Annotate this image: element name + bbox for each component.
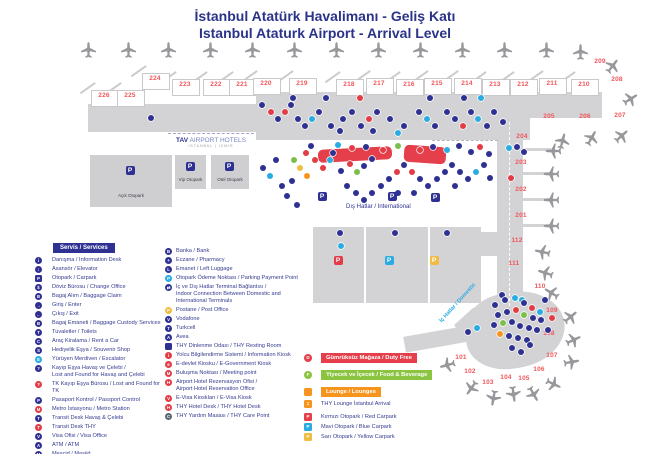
legend-item-label: Döviz Bürosu / Change Office [52,284,126,291]
bank-icon: B [165,248,172,255]
gate-label: 223 [173,81,197,88]
legend-item: HAirport Hotel Rezervasyon Ofisi / Airpo… [165,379,310,393]
airplane-icon [161,42,176,58]
tav-airport-hotels-logo: TAV AIRPORT HOTELS ISTANBUL | IZMIR [168,133,254,148]
airplane-icon [543,167,559,182]
legend-item-label: E-Visa Kioskları / E-Visa Kiosk [176,395,252,402]
gate-label: 203 [509,159,533,166]
gate-label: 213 [483,81,507,88]
airplane-icon [543,374,564,394]
gate-label: 110 [528,283,552,290]
map-poi-icon [409,169,416,176]
map-poi-icon [354,169,361,176]
international-terminal-building [313,227,481,303]
yellow-carpark-icon: P [304,433,312,441]
thy-resting-room-icon [165,343,172,350]
carpark-p-icon: P [388,192,397,201]
carpark-icon: P [35,275,42,282]
map-poi-icon [457,169,464,176]
map-poi-icon [521,149,528,156]
open-carpark-area [90,155,172,207]
legend-item: →Giriş / Enter [35,302,165,309]
legend-item-label: Otopark / Carpark [52,275,96,282]
legend-item: HTHY Hotel Desk / THY Hotel Desk [165,404,310,411]
legend-item-label: Emanet / Left Luggage [176,266,233,273]
legend-item: VVisa Ofisi / Visa Office [35,433,165,440]
legend-item: AATM / ATM [35,442,165,449]
carpark-p-icon: P [430,256,439,265]
map-poi-icon [442,169,449,176]
airplane-icon [504,385,521,403]
vip-carpark-label: Vip Otopark [172,177,209,182]
map-poi-icon [486,151,493,158]
map-poi-icon [304,173,311,180]
legend-item: PPasaport Kontrol / Passport Control [35,397,165,404]
map-poi-icon [401,162,408,169]
lounge-icon [304,388,312,396]
airplane-icon [497,42,512,58]
gate-label: 217 [367,80,391,87]
blue-carpark-label: Mavi Otopark / Blue Carpark [321,424,392,430]
legend-item-label: ATM / ATM [52,442,79,449]
gate-label: 209 [588,58,612,65]
gate-label: 218 [337,81,361,88]
lounge-banner: Lounge / Lounges [321,387,381,397]
legend-item-label: Turkcell [176,325,195,332]
toilets-icon: T [35,329,42,336]
legend-item: VE-Visa Kioskları / E-Visa Kiosk [165,395,310,402]
legend-item: BBanka / Bank [165,248,310,255]
map-poi-icon [312,157,319,164]
legend-item: LEmanet / Left Luggage [165,266,310,273]
legend-item-label: Pasaport Kontrol / Passport Control [52,397,140,404]
legend-item-label: THY Yardım Masası / THY Care Point [176,413,269,420]
map-poi-icon [434,176,441,183]
airplane-icon [81,42,96,58]
legend-item-label: Bagaj Emaneti / Baggage Custody Services [52,320,161,327]
thy-hotel-desk-icon: H [165,404,172,411]
map-poi-icon [361,163,368,170]
legend-item-label: E-devlet Kiosku / E-Government Kiosk [176,361,271,368]
legend-item-label: THY Hotel Desk / THY Hotel Desk [176,404,261,411]
map-poi-icon [425,183,432,190]
exit-icon: ← [35,311,42,318]
legend-item: POtopark / Carpark [35,275,165,282]
map-poi-icon [361,197,368,204]
legend-lounge: Lounge / Lounges [304,387,381,397]
baggage-custody-icon: B [35,320,42,327]
food-beverage-banner: Yiyecek ve İçecek / Food & Beverage [321,370,432,380]
enter-icon: → [35,302,42,309]
gate-label: 208 [605,76,629,83]
legend-item: iDanışma / Information Desk [35,257,165,264]
post-office-icon: P [165,307,172,314]
red-carpark-label: Kırmızı Otopark / Red Carpark [321,414,397,420]
map-poi-icon [284,193,291,200]
gate-label: 201 [509,212,533,219]
gate-label: 112 [505,237,529,244]
duty-free-banner: Gümrüksüz Mağaza / Duty Free [321,353,417,363]
walkway-dashes [432,140,498,141]
legend-item-label: THY Dinlenme Odası / THY Resting Room [176,343,281,350]
map-poi-icon [291,157,298,164]
map-poi-icon [378,183,385,190]
airplane-icon [543,193,559,208]
vip-carpark-area [175,155,206,189]
carpark-p-icon: P [318,192,327,201]
legend-item: CTHY Yardım Masası / THY Care Point [165,413,310,420]
escalator-icon: E [35,356,42,363]
airplane-icon [371,42,386,58]
map-poi-icon [289,178,296,185]
page-title: İstanbul Atatürk Havalimanı - Geliş Katı… [0,8,650,41]
carpark-p-icon: P [186,162,195,171]
lost-and-found-havas-celebi-icon: ? [35,365,42,372]
legend-item-label: Araç Kiralama / Rent a Car [52,338,119,345]
legend-red-carpark: P Kırmızı Otopark / Red Carpark [304,413,397,421]
gate-label: 202 [509,186,533,193]
change-office-icon: $ [35,284,42,291]
map-poi-icon [294,202,301,209]
international-label: Dış Hatlar / International [346,204,411,210]
gate-label: 225 [118,92,142,99]
legend-item-label: Metro İstasyonu / Metro Station [52,406,130,413]
information-desk-icon: i [35,257,42,264]
legend-item: MBuluşma Noktası / Meeting point [165,370,310,377]
legend-item-label: Transit Desk Havaş & Çelebi [52,415,123,422]
legend-item: VVodafone [165,316,310,323]
carpark-p-icon: P [126,166,135,175]
blue-carpark-icon: P [304,423,312,431]
legend-item-label: Otopark Ödeme Noktası / Parking Payment … [176,275,298,282]
gate-label: 106 [527,366,551,373]
legend-item-label: Transit Desk THY [52,424,96,431]
carpark-p-icon: P [334,256,343,265]
legend-item-label: Yolcu Bilgilendirme Sistemi / Informatio… [176,352,291,359]
legend-item-label: Eczane / Pharmacy [176,257,225,264]
legend-duty-free: D Gümrüksüz Mağaza / Duty Free [304,353,417,363]
map-poi-icon [487,175,494,182]
gate-label: 222 [204,81,228,88]
legend-item-label: Danışma / Information Desk [52,257,121,264]
airplane-icon [484,389,502,407]
gate-label: 220 [254,80,278,87]
gate-label: 111 [502,260,526,267]
map-poi-icon [468,149,475,156]
map-poi-icon [320,165,327,172]
airplane-icon [287,42,302,58]
services-header: Servis / Services [53,243,115,253]
e-visa-kiosk-icon: V [165,395,172,402]
gate-label: 204 [510,133,534,140]
legend-services: Servis / Services iDanışma / Information… [35,236,165,454]
legend-item-label: TK Kayıp Eşya Bürosu / Lost and Found fo… [52,381,165,395]
airplane-icon [573,44,588,60]
legend-item-label: Kayıp Eşya Havaş ve Çelebi / Lost and Fo… [52,365,145,379]
legend-item: +Eczane / Pharmacy [165,257,310,264]
map-poi-icon [395,143,402,150]
legend-item: POtopark Ödeme Noktası / Parking Payment… [165,275,310,282]
airplane-icon [121,42,136,58]
title-line-turkish: İstanbul Atatürk Havalimanı - Geliş Katı [0,8,650,25]
tav-logo-subtext: ISTANBUL | IZMIR [168,144,254,148]
gate-label: 211 [540,80,564,87]
legend-item: ⇄İç ve Dış Hatlar Terminal Bağlantısı / … [165,284,310,305]
airport-hotel-reservation-icon: H [165,379,172,386]
gate-label: 221 [230,81,254,88]
gate-label: 205 [537,113,561,120]
legend-item: $Döviz Bürosu / Change Office [35,284,165,291]
legend-item: PPostane / Post Office [165,307,310,314]
legend-item: AAvea [165,334,310,341]
legend-item-label: Hediyelik Eşya / Souvenir Shop [52,347,130,354]
masjid-icon: M [35,451,42,454]
gate-label: 207 [608,112,632,119]
map-poi-icon [473,169,480,176]
hotel-carpark-label: Otel Otopark [209,177,251,182]
map-poi-icon [344,183,351,190]
facilities-list: BBanka / Bank+Eczane / PharmacyLEmanet /… [165,248,310,420]
airplane-icon [619,88,641,109]
tav-logo-text: TAV AIRPORT HOTELS [168,137,254,144]
gate-label: 219 [290,80,314,87]
meeting-point-icon: M [165,370,172,377]
airplane-icon [563,330,584,350]
gate-label: 206 [573,113,597,120]
legend-item: BBagaj Alım / Baggage Claim [35,293,165,300]
avea-icon: A [165,334,172,341]
legend-item-label: Yürüyen Merdiven / Escalator [52,356,125,363]
airplane-icon [581,127,602,148]
map-poi-icon [260,165,267,172]
pharmacy-icon: + [165,257,172,264]
legend-item-label: İç ve Dış Hatlar Terminal Bağlantısı / I… [176,284,281,305]
carpark-p-icon: P [225,162,234,171]
terminal-annex [481,232,497,256]
map-poi-icon [338,168,345,175]
map-poi-icon [297,165,304,172]
airplane-icon [545,144,561,159]
map-poi-icon [279,183,286,190]
legend-item: CAraç Kiralama / Rent a Car [35,338,165,345]
legend-item-label: Banka / Bank [176,248,209,255]
map-poi-icon [267,173,274,180]
airplane-icon [203,42,218,58]
duty-free-icon: D [304,354,312,362]
carpark-divider [428,227,430,303]
map-poi-icon [465,176,472,183]
map-poi-icon [335,142,342,149]
map-poi-icon [273,157,280,164]
airplane-icon [543,219,559,234]
legend-blue-carpark: P Mavi Otopark / Blue Carpark [304,423,392,431]
thy-lounge-label: THY Lounge İstanbul Arrival [321,401,391,407]
legend-item: TTransit Desk THY [35,424,165,431]
souvenir-shop-icon: S [35,347,42,354]
map-poi-icon [308,143,315,150]
elevator-icon: ↕ [35,266,42,273]
map-poi-icon [303,150,310,157]
legend-item-label: Buluşma Noktası / Meeting point [176,370,257,377]
legend-item-label: Visa Ofisi / Visa Office [52,433,107,440]
west-terminal-building [88,104,258,132]
airplane-icon [329,42,344,58]
gate-label: 215 [425,80,449,87]
map-poi-icon [449,162,456,169]
legend-yellow-carpark: P Sarı Otopark / Yellow Carpark [304,433,395,441]
legend-item: eE-devlet Kiosku / E-Government Kiosk [165,361,310,368]
legend-item: BBagaj Emaneti / Baggage Custody Service… [35,320,165,327]
legend-item-label: Asansör / Elevator [52,266,98,273]
map-poi-icon [386,176,393,183]
airplane-icon [539,42,554,58]
legend-item: TTransit Desk Havaş & Çelebi [35,415,165,422]
airplane-icon [455,42,470,58]
parking-payment-icon: P [165,275,172,282]
transit-desk-havas-celebi-icon: T [35,415,42,422]
baggage-claim-icon: B [35,293,42,300]
airplane-icon [535,263,555,282]
terminal-connection-icon: ⇄ [165,284,172,291]
legend-item-label: Giriş / Enter [52,302,82,309]
legend-item: MMescid / Masjid [35,451,165,454]
map-poi-icon [417,176,424,183]
rent-a-car-icon: C [35,338,42,345]
legend-item-label: Mescid / Masjid [52,451,91,454]
gate-label: 101 [449,354,473,361]
legend-item: THY Dinlenme Odası / THY Resting Room [165,343,310,350]
legend-item: TTurkcell [165,325,310,332]
legend-item: ?Kayıp Eşya Havaş ve Çelebi / Lost and F… [35,365,165,379]
airplane-icon [245,42,260,58]
legend-item: TTuvaletler / Toilets [35,329,165,336]
gate-label: 107 [540,352,564,359]
map-poi-icon [369,190,376,197]
map-poi-icon [456,143,463,150]
legend-thy-lounge: 1 THY Lounge İstanbul Arrival [304,400,391,408]
legend-facilities: BBanka / Bank+Eczane / PharmacyLEmanet /… [165,248,310,422]
legend-item-label: Bagaj Alım / Baggage Claim [52,293,122,300]
thy-care-point-icon: C [165,413,172,420]
gate-label: 102 [458,368,482,375]
map-poi-icon [452,183,459,190]
gate-label: 210 [572,81,596,88]
gate-label: 224 [143,75,167,82]
airplane-icon [523,383,544,404]
open-carpark-label: Açık Otopark [98,193,164,198]
airplane-icon [610,125,632,147]
gate-label: 226 [92,92,116,99]
legend-item-label: Avea [176,334,189,341]
legend-item-label: Çıkış / Exit [52,311,79,318]
atm-icon: A [35,442,42,449]
tav-brand-rest: AIRPORT HOTELS [188,137,246,144]
information-kiosk-icon: i [165,352,172,359]
map-poi-icon [369,156,376,163]
map-poi-icon [481,162,488,169]
map-poi-icon [327,157,334,164]
passport-control-icon: P [35,397,42,404]
map-poi-icon [394,169,401,176]
food-beverage-icon: F [304,371,312,379]
hotel-carpark-area [211,155,249,189]
legend-food-beverage: F Yiyecek ve İçecek / Food & Beverage [304,370,432,380]
gate-label: 216 [397,81,421,88]
map-poi-icon [477,144,484,151]
lost-and-found-tk-icon: ? [35,381,42,388]
legend-item: iYolcu Bilgilendirme Sistemi / Informati… [165,352,310,359]
carpark-p-icon: P [385,256,394,265]
legend-item: SHediyelik Eşya / Souvenir Shop [35,347,165,354]
turkcell-icon: T [165,325,172,332]
legend-item: ↕Asansör / Elevator [35,266,165,273]
left-luggage-icon: L [165,266,172,273]
gate-label: 214 [455,80,479,87]
map-poi-icon [411,190,418,197]
gate-label: 212 [511,81,535,88]
airplane-icon [562,353,580,371]
airplane-icon [413,42,428,58]
airport-map-page: İstanbul Atatürk Havalimanı - Geliş Katı… [0,0,650,454]
legend-item-label: Airport Hotel Rezervasyon Ofisi / Airpor… [176,379,257,393]
legend-item-label: Tuvaletler / Toilets [52,329,97,336]
airplane-icon [533,243,552,261]
map-poi-icon [353,190,360,197]
services-list: iDanışma / Information Desk↕Asansör / El… [35,257,165,454]
gate-label: 109 [540,307,564,314]
transit-desk-thy-icon: T [35,424,42,431]
yellow-carpark-label: Sarı Otopark / Yellow Carpark [321,434,395,440]
title-line-english: Istanbul Ataturk Airport - Arrival Level [0,25,650,42]
map-poi-icon [347,161,354,168]
duty-free-zone [403,145,446,165]
legend-item: EYürüyen Merdiven / Escalator [35,356,165,363]
vodafone-icon: V [165,316,172,323]
legend-item-label: Vodafone [176,316,200,323]
legend-item-label: Postane / Post Office [176,307,228,314]
legend-item: MMetro İstasyonu / Metro Station [35,406,165,413]
tav-brand: TAV [176,137,188,144]
carpark-p-icon: P [431,193,440,202]
legend-item: ←Çıkış / Exit [35,311,165,318]
legend-item: ?TK Kayıp Eşya Bürosu / Lost and Found f… [35,381,165,395]
e-government-kiosk-icon: e [165,361,172,368]
metro-station-icon: M [35,406,42,413]
map-poi-icon [444,147,451,154]
gate-label: 103 [476,379,500,386]
visa-office-icon: V [35,433,42,440]
thy-lounge-icon: 1 [304,400,312,408]
red-carpark-icon: P [304,413,312,421]
carpark-divider [364,227,366,303]
